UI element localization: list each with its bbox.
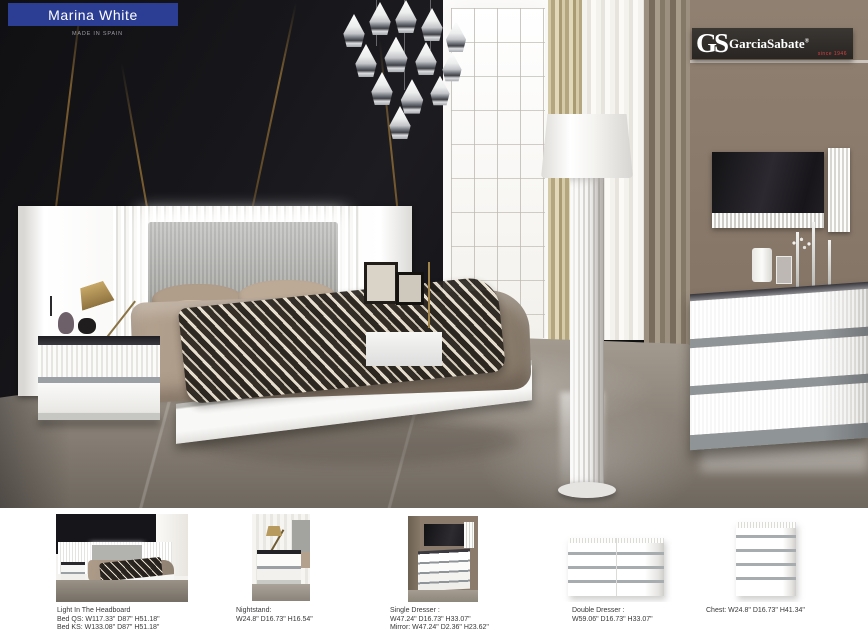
caption-line: Chest: W24.8" D16.73" H41.34" [706, 607, 805, 616]
caption-bed: Light In The Headboard Bed QS: W117.33" … [57, 607, 160, 633]
thumbnail-chest [722, 514, 808, 602]
mini-stripe [736, 549, 796, 552]
mirror-side-panel [828, 148, 850, 232]
candlestick [812, 222, 815, 288]
collection-title: Marina White [48, 7, 138, 23]
caption-line: W24.8" D16.73" H16.54" [236, 616, 313, 625]
thumbnail-double-dresser [560, 514, 672, 602]
nightstand-top [38, 336, 160, 345]
caption-single-dresser: Single Dresser : W47.24" D16.73" H33.07"… [390, 607, 489, 633]
nightstand-base [38, 413, 160, 420]
mini-lamp-shade [266, 526, 282, 536]
caption-line: Bed QS: W117.33" D87" H51.18" [57, 616, 160, 625]
brand-name: GarciaSabate® [729, 36, 809, 52]
mini-drawer [736, 522, 796, 528]
caption-nightstand: Nightstand: W24.8" D16.73" H16.54" [236, 607, 313, 624]
picture-frame [364, 262, 398, 304]
candlestick [828, 240, 831, 288]
wall-mirror [712, 152, 824, 228]
caption-line: Bed KS: W133.08" D87" H51.18" [57, 624, 160, 633]
floor-lamp-column [570, 178, 604, 486]
thumbnail-nightstand [252, 514, 310, 601]
nightstand-drawer [38, 383, 160, 413]
mini-dresser [418, 549, 470, 592]
caption-line: Nightstand: [236, 607, 313, 616]
mini-floor [56, 580, 188, 602]
mini-floor [252, 584, 310, 601]
mini-mirror [424, 524, 468, 546]
thumbnail-bed [56, 514, 188, 602]
mini-floor [408, 590, 478, 602]
made-in-label: MADE IN SPAIN [72, 31, 123, 37]
caption-line: W59.06" D16.73" H33.07" [572, 616, 653, 625]
mini-nightstand [61, 562, 85, 580]
taupe-drape [644, 0, 694, 344]
decor-vase [78, 318, 96, 334]
brand-since: since 1946 [818, 51, 847, 57]
nightstand-drawer [38, 345, 160, 377]
collection-title-banner: Marina White [8, 3, 178, 26]
decor-vase [58, 312, 74, 334]
registered-mark: ® [805, 38, 809, 44]
caption-double-dresser: Double Dresser : W59.06" D16.73" H33.07" [572, 607, 653, 624]
nightstand [38, 336, 160, 420]
mini-stripe [736, 563, 796, 566]
dresser-reflection [700, 444, 868, 472]
floor-lamp-base [558, 482, 616, 498]
mirror-fluted-strip [712, 213, 824, 228]
mini-dresser-body [568, 538, 664, 596]
decor-vase [752, 248, 772, 282]
thumbnail-single-dresser [408, 516, 478, 602]
candle [50, 296, 52, 316]
caption-line: Single Dresser : [390, 607, 489, 616]
mini-mirror-panel [464, 522, 474, 548]
mini-seam [616, 538, 617, 596]
mini-chest-body [736, 522, 796, 596]
table-lamp [428, 262, 430, 328]
brand-logo: GS GarciaSabate® since 1946 [692, 28, 853, 59]
wall-trim [690, 60, 868, 63]
decor-flowers [788, 234, 818, 252]
decor-glass [776, 256, 792, 284]
brand-initials: GS [696, 30, 726, 57]
caption-line: Mirror: W47.24" D2.36" H23.62" [390, 624, 489, 633]
caption-chest: Chest: W24.8" D16.73" H41.34" [706, 607, 805, 616]
right-nightstand [366, 332, 442, 366]
hero-room-photo: Marina White MADE IN SPAIN GS GarciaSaba… [0, 0, 868, 508]
double-dresser [690, 282, 868, 450]
catalog-page: Marina White MADE IN SPAIN GS GarciaSaba… [0, 0, 868, 640]
mini-nightstand [257, 550, 301, 584]
mini-headboard-corner [292, 520, 310, 554]
caption-line: Double Dresser : [572, 607, 653, 616]
mini-stripe [736, 577, 796, 580]
mini-stripe [736, 535, 796, 538]
caption-line: Light In The Headboard [57, 607, 160, 616]
caption-line: W47.24" D16.73" H33.07" [390, 616, 489, 625]
floor-lamp-shade [541, 114, 633, 178]
picture-frame [396, 272, 424, 305]
